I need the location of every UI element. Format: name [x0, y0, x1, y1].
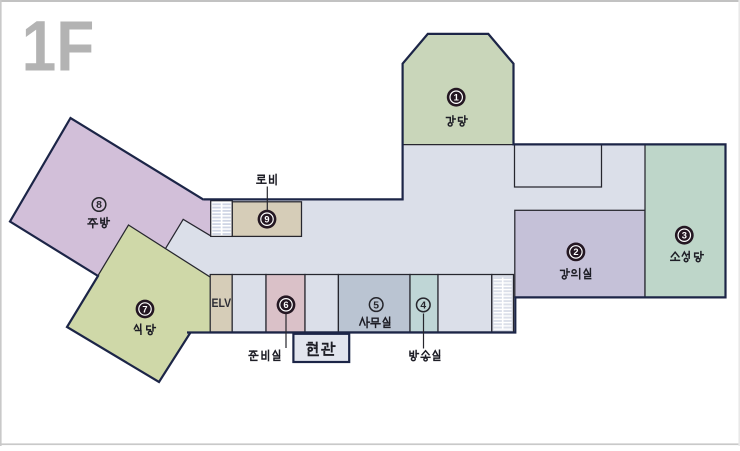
svg-text:5: 5: [373, 300, 379, 311]
svg-text:9: 9: [264, 215, 269, 225]
svg-text:7: 7: [142, 304, 147, 314]
svg-text:3: 3: [682, 231, 687, 241]
svg-text:8: 8: [96, 200, 102, 211]
svg-text:1F: 1F: [22, 8, 95, 87]
svg-text:ELV: ELV: [212, 298, 232, 310]
svg-text:6: 6: [283, 300, 288, 310]
svg-text:1: 1: [454, 93, 459, 103]
svg-text:2: 2: [573, 247, 578, 257]
svg-text:4: 4: [420, 301, 426, 312]
